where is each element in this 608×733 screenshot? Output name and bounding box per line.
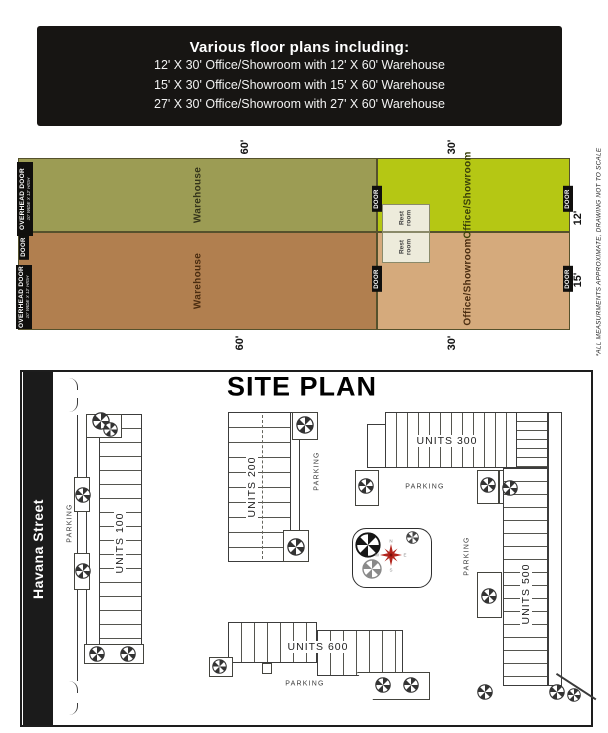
overhead-door-label-top: OVERHEAD DOOR 10' WIDE X 12' HIGH bbox=[17, 162, 33, 236]
tree-icon bbox=[287, 538, 305, 556]
parking-label: PARKING bbox=[285, 681, 324, 688]
street-name-label: Havana Street bbox=[30, 499, 46, 599]
compass-east-label: E bbox=[403, 553, 406, 558]
tree-icon bbox=[567, 688, 581, 702]
tree-icon bbox=[403, 677, 419, 693]
overhead-door-label-bottom: OVERHEAD DOOR 10' WIDE X 12' HIGH bbox=[16, 265, 32, 329]
parking-label: PARKING bbox=[67, 503, 74, 542]
dim-15: 15' bbox=[572, 273, 584, 288]
tree-icon bbox=[549, 684, 565, 700]
dim-60-bottom: 60' bbox=[234, 336, 246, 351]
door-label-bottom-mid: DOOR bbox=[372, 266, 382, 292]
unit-divisions bbox=[516, 413, 547, 467]
restroom-label-bottom: Rest room bbox=[400, 239, 413, 255]
office-label-top: Office/Showroom bbox=[463, 151, 474, 238]
units-100-label: UNITS 100 bbox=[114, 511, 126, 576]
dim-60-top: 60' bbox=[239, 140, 251, 155]
compass-north-label: N bbox=[389, 539, 392, 544]
street-curb-line bbox=[77, 415, 78, 681]
tree-icon bbox=[89, 646, 105, 662]
flyer-page: Various floor plans including: 12' X 30'… bbox=[0, 0, 608, 733]
units-200-label: UNITS 200 bbox=[246, 455, 258, 520]
tree-icon bbox=[358, 478, 374, 494]
building-units-500-corridor bbox=[548, 412, 562, 686]
building-foot bbox=[262, 663, 272, 674]
tree-icon bbox=[480, 477, 496, 493]
building-centerline bbox=[262, 415, 263, 559]
warehouse-label-bottom: Warehouse bbox=[193, 253, 204, 309]
tree-icon bbox=[362, 559, 382, 579]
tree-icon bbox=[103, 422, 118, 437]
compass-south-label: S bbox=[389, 568, 392, 573]
dim-30-top: 30' bbox=[446, 140, 458, 155]
tree-icon bbox=[375, 677, 391, 693]
tree-icon bbox=[502, 480, 518, 496]
unit-divisions bbox=[229, 413, 290, 561]
compass-rose-icon bbox=[380, 544, 402, 566]
warehouse-label-top: Warehouse bbox=[193, 167, 204, 223]
tree-icon bbox=[296, 416, 314, 434]
header-line-2: 15' X 30' Office/Showroom with 15' X 60'… bbox=[37, 76, 562, 96]
dim-30-bottom: 30' bbox=[446, 336, 458, 351]
building-units-600-right bbox=[317, 630, 403, 676]
door-label-top-mid: DOOR bbox=[372, 186, 382, 212]
compass-west-label: W bbox=[375, 553, 379, 558]
office-label-bottom: Office/Showroom bbox=[463, 238, 474, 325]
parking-label: PARKING bbox=[314, 451, 321, 490]
building-units-300-end bbox=[367, 424, 386, 468]
header-title: Various floor plans including: bbox=[37, 39, 562, 56]
dim-12: 12' bbox=[572, 211, 584, 226]
units-600-label: UNITS 600 bbox=[286, 641, 351, 653]
tree-icon bbox=[120, 646, 136, 662]
tree-icon bbox=[477, 684, 493, 700]
units-500-label: UNITS 500 bbox=[520, 562, 532, 627]
parking-label: PARKING bbox=[405, 484, 444, 491]
header-banner: Various floor plans including: 12' X 30'… bbox=[37, 26, 562, 126]
units-300-label: UNITS 300 bbox=[415, 435, 480, 447]
measurements-disclaimer: *ALL MEASURMENTS APPROXIMATE, DRAWING NO… bbox=[596, 148, 603, 357]
tree-icon bbox=[75, 563, 91, 579]
building-corridor-line bbox=[99, 415, 100, 662]
tree-icon bbox=[75, 487, 91, 503]
tree-icon bbox=[481, 588, 497, 604]
door-label-bottom-left: DOOR bbox=[19, 234, 29, 260]
tree-icon bbox=[406, 531, 419, 544]
door-label-top-right: DOOR bbox=[563, 186, 573, 212]
site-plan-title: SITE PLAN bbox=[227, 372, 377, 403]
parking-label: PARKING bbox=[464, 536, 471, 575]
tree-icon bbox=[212, 659, 227, 674]
header-line-1: 12' X 30' Office/Showroom with 12' X 60'… bbox=[37, 56, 562, 76]
restroom-label-top: Rest room bbox=[400, 210, 413, 226]
unit-divisions bbox=[318, 631, 402, 675]
header-line-3: 27' X 30' Office/Showroom with 27' X 60'… bbox=[37, 95, 562, 115]
